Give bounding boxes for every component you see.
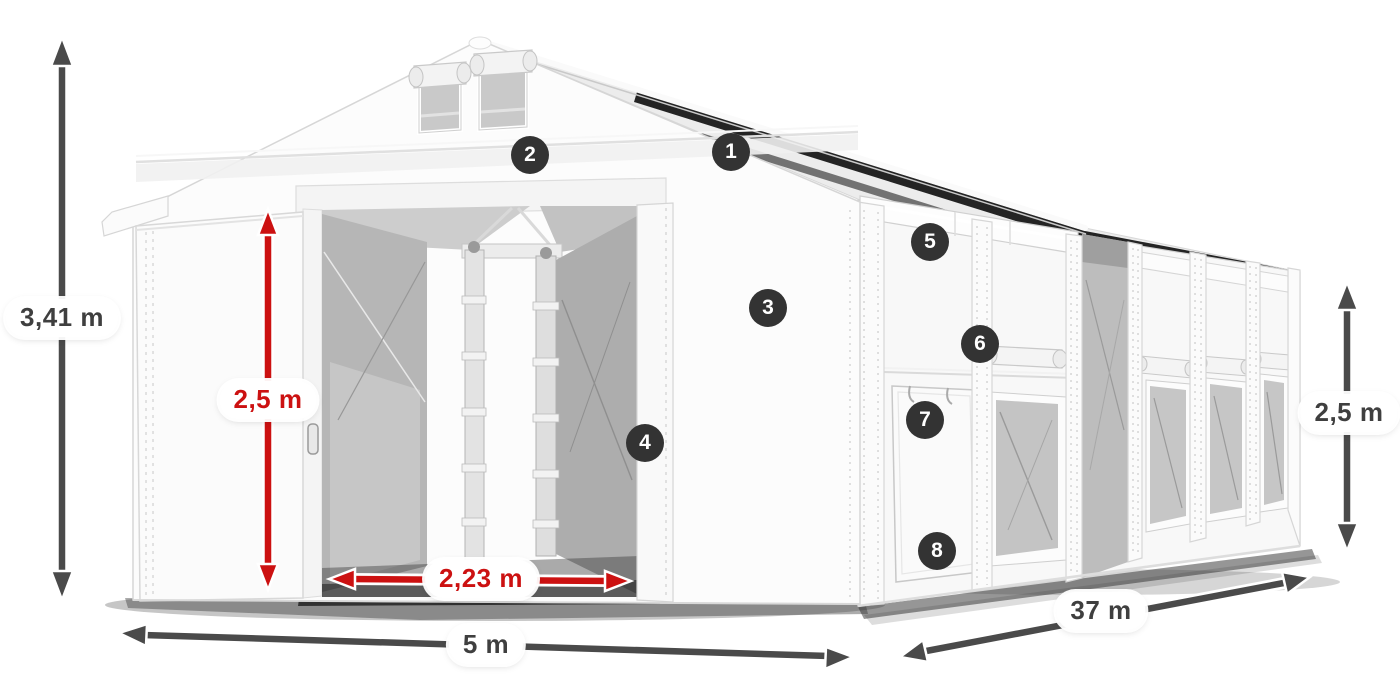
gable-vent-left	[409, 62, 471, 133]
dim-label-entrance-height: 2,5 m	[220, 381, 317, 419]
gable-peak-cap	[469, 37, 491, 49]
door-handle	[308, 424, 318, 454]
dim-label-tent-width: 5 m	[449, 626, 523, 664]
side-opening	[1082, 234, 1128, 578]
door-opening-interior	[303, 206, 638, 598]
callout-badge-5: 5	[911, 223, 949, 261]
callout-badge-1: 1	[712, 133, 750, 171]
dim-label-side-height: 2,5 m	[1301, 394, 1398, 432]
interior-pole-2	[533, 247, 559, 556]
dim-label-tent-length: 37 m	[1056, 592, 1145, 630]
dim-label-total-height: 3,41 m	[6, 299, 118, 337]
callout-badge-8: 8	[918, 532, 956, 570]
interior-pole-1	[462, 241, 486, 562]
interior-mesh-right	[556, 216, 637, 594]
gable-vent-right	[470, 50, 537, 130]
tent-illustration	[0, 0, 1400, 700]
dim-label-entrance-width: 2,23 m	[425, 560, 537, 598]
callout-badge-7: 7	[906, 401, 944, 439]
tent-dimension-diagram: 3,41 m 2,5 m 2,23 m 5 m 37 m 2,5 m 1 2 3…	[0, 0, 1400, 700]
callout-badge-2: 2	[511, 136, 549, 174]
window-roll-tube	[988, 346, 1062, 368]
callout-badge-6: 6	[961, 325, 999, 363]
callout-badge-3: 3	[749, 289, 787, 327]
right-door-panel	[637, 203, 673, 602]
callout-badge-4: 4	[626, 424, 664, 462]
